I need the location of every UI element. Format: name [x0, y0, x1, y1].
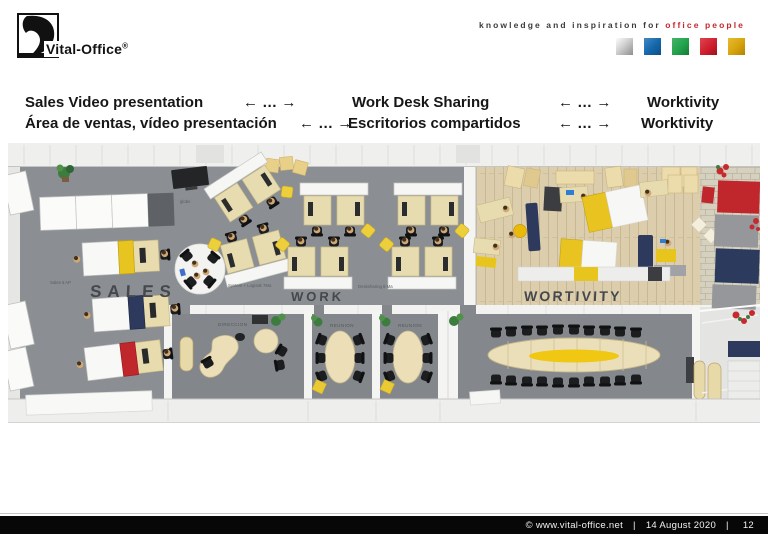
- top-wall-band: [8, 143, 760, 167]
- header-line-en: Sales Video presentation ← … → Work Desk…: [0, 94, 768, 115]
- tagline-highlight: office people: [665, 20, 745, 30]
- round-table: [254, 329, 278, 353]
- reunion2-label: REUNION: [398, 323, 422, 328]
- door-leaf: [708, 363, 721, 403]
- work-zone-label: WORK: [291, 289, 345, 304]
- brand-tagline: knowledge and inspiration for office peo…: [479, 20, 745, 55]
- footer-page-number: 12: [743, 520, 754, 531]
- header-worktivity-label: Worktivity: [647, 94, 719, 111]
- header-line-es: Área de ventas, vídeo presentación ← … →…: [0, 115, 768, 136]
- header-sales-label-es: Área de ventas, vídeo presentación: [25, 115, 277, 132]
- table-inlay: [529, 350, 619, 363]
- header-arrow: ← … →: [558, 94, 611, 111]
- red-cabinet: [701, 186, 715, 203]
- footer-separator: |: [726, 520, 729, 531]
- direccion-label: DIRECCION: [218, 322, 247, 327]
- reunion1-label: REUNION: [330, 323, 354, 328]
- meeting-table: [393, 331, 423, 383]
- registered-mark: ®: [122, 41, 128, 50]
- brand-square-blue: [644, 38, 661, 55]
- presentation-slide: Vital-Office® knowledge and inspiration …: [0, 0, 768, 538]
- sales-desk-yellow: [73, 238, 171, 276]
- work-sublabel-right: Desksharing 8 Ma: [358, 284, 393, 289]
- footer-date: 14 August 2020: [646, 520, 716, 531]
- sales-cabinets: [40, 193, 175, 231]
- lounge-rug: [175, 244, 225, 294]
- header-work-label-es: Escritorios compartidos: [348, 115, 521, 132]
- door-leaf: [180, 337, 193, 371]
- header-worktivity-label-es: Worktivity: [641, 115, 713, 132]
- sideboard-row: [518, 267, 670, 281]
- inner-wall-horizontal: [164, 305, 760, 314]
- logo-text: Vital-Office®: [44, 41, 130, 57]
- footer-divider: [0, 513, 768, 514]
- brand-squares: [479, 38, 745, 55]
- brand-square-gold: [728, 38, 745, 55]
- sales-sublabel: Sales 6 AP: [50, 280, 71, 285]
- footer-bar: © www.vital-office.net | 14 August 2020 …: [0, 516, 768, 534]
- header-arrow: ← … →: [243, 94, 296, 111]
- header-sales-label: Sales Video presentation: [25, 94, 203, 111]
- brand-square-red: [700, 38, 717, 55]
- meeting-table: [325, 331, 355, 383]
- slide-headers: Sales Video presentation ← … → Work Desk…: [0, 94, 768, 136]
- navy-bench: [728, 341, 760, 357]
- tagline-text: knowledge and inspiration for: [479, 20, 661, 30]
- brand-square-silver: [616, 38, 633, 55]
- credenza: [252, 315, 268, 324]
- globe-label: globe: [180, 199, 191, 204]
- header-work-label: Work Desk Sharing: [352, 94, 489, 111]
- work-wortivity-wall: [464, 167, 476, 307]
- footer-copyright: © www.vital-office.net: [526, 520, 623, 531]
- sales-zone-label: SALES: [90, 282, 178, 301]
- vital-office-logo: Vital-Office®: [17, 13, 177, 61]
- work-sublabel-left: System + Logistik 7Ma: [228, 283, 272, 288]
- yellow-stool: [514, 225, 527, 238]
- header-arrow: ← … →: [558, 115, 611, 132]
- wortivity-zone-label: WORTIVITY: [524, 288, 622, 304]
- office-floorplan: globe SALES Sales 6 AP: [8, 143, 760, 433]
- door-cabinet: [686, 357, 694, 383]
- brand-square-green: [672, 38, 689, 55]
- wall-panels: [712, 180, 760, 310]
- footer-separator: |: [633, 520, 636, 531]
- low-cabinet: [728, 361, 760, 399]
- header-arrow: ← … →: [299, 115, 352, 132]
